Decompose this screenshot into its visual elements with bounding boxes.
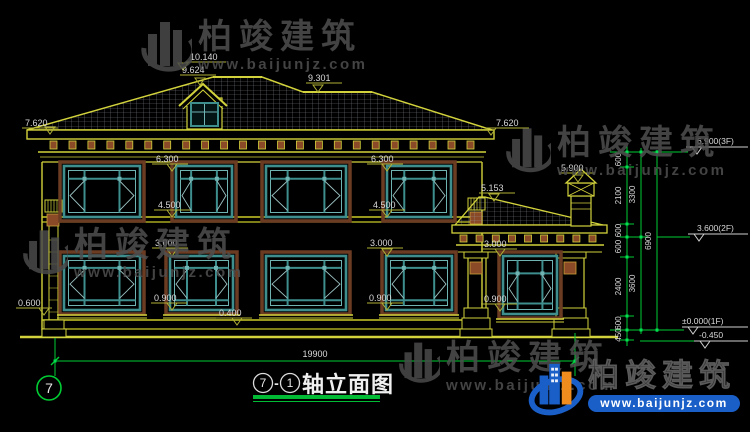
window bbox=[259, 252, 353, 318]
window bbox=[172, 162, 236, 221]
dim-base-left: 0.600 bbox=[18, 298, 41, 308]
dim-ridge-secondary: 9.301 bbox=[308, 73, 331, 83]
chain-dim-value: 450 bbox=[614, 328, 623, 342]
chain-dim-value: 600 bbox=[614, 239, 623, 253]
dim-porch-eave: 5.153 bbox=[481, 183, 504, 193]
window bbox=[383, 162, 455, 221]
window bbox=[262, 162, 350, 221]
brand-logo: 柏竣建筑 www.baijunjz.com bbox=[528, 360, 740, 418]
dim-2f-sill-left: 4.500 bbox=[158, 200, 181, 210]
brand-logo-text: 柏竣建筑 bbox=[588, 360, 740, 393]
window bbox=[379, 252, 459, 318]
dim-2f-sill-right: 4.500 bbox=[373, 200, 396, 210]
dentil-row-porch bbox=[460, 235, 596, 242]
main-eave bbox=[27, 130, 494, 162]
flag-ground: -0.450 bbox=[699, 330, 723, 340]
dim-eave-right: 7.620 bbox=[496, 118, 519, 128]
flag-2f: 3.600(2F) bbox=[697, 223, 734, 233]
cad-elevation-screenshot: 10.140 9.624 9.301 7.620 7.620 5.900 5.1… bbox=[0, 0, 750, 432]
dim-1f-sill-left: 0.900 bbox=[154, 293, 177, 303]
dim-1f-sill-porch: 0.900 bbox=[484, 294, 507, 304]
dim-overall-width: 19900 bbox=[302, 349, 327, 359]
chain-dim-value: 6900 bbox=[644, 232, 653, 250]
title-axis-end: 1 bbox=[287, 376, 294, 390]
chain-dim-value: 3600 bbox=[628, 274, 637, 292]
window bbox=[496, 252, 564, 322]
title-text: 轴立面图 bbox=[302, 372, 394, 397]
window bbox=[60, 162, 144, 221]
drawing-title: 7 - 1 轴立面图 bbox=[253, 372, 394, 402]
chain-dim-value: 3300 bbox=[628, 185, 637, 203]
brand-logo-url: www.baijunjz.com bbox=[588, 395, 740, 412]
chain-dim-value: 600 bbox=[614, 152, 623, 166]
chain-dim-value: 2400 bbox=[614, 277, 623, 295]
chain-dim-value: 2100 bbox=[614, 186, 623, 204]
dim-1f-head-mid: 3.000 bbox=[370, 238, 393, 248]
dim-1f-sill-mid: 0.900 bbox=[369, 293, 392, 303]
brand-logo-icon bbox=[528, 360, 584, 418]
dim-1f-head-porch: 3.000 bbox=[484, 239, 507, 249]
dim-2f-head-right: 6.300 bbox=[371, 154, 394, 164]
dim-eave-left: 7.620 bbox=[25, 118, 48, 128]
dim-ridge-main: 10.140 bbox=[190, 52, 218, 62]
dim-chimney-top: 5.900 bbox=[561, 163, 584, 173]
title-separator: - bbox=[274, 375, 279, 391]
main-roof bbox=[27, 77, 492, 130]
flag-1f: ±0.000(1F) bbox=[682, 316, 724, 326]
dim-dormer-ridge: 9.624 bbox=[182, 65, 205, 75]
window bbox=[57, 252, 147, 318]
chain-value-texts: 60021006006002400600450330036006900 bbox=[614, 152, 653, 341]
dim-1f-head-left: 3.000 bbox=[155, 238, 178, 248]
dentil-row-main bbox=[50, 141, 474, 149]
axis-bubble-label: 7 bbox=[45, 380, 53, 396]
flag-3f: 6.900(3F) bbox=[697, 136, 734, 146]
axis-bubble-7: 7 bbox=[37, 376, 61, 400]
title-underline-thick bbox=[253, 395, 380, 399]
dim-plinth-top: 0.400 bbox=[219, 308, 242, 318]
dim-2f-head-left: 6.300 bbox=[156, 154, 179, 164]
level-flag-texts: 6.900(3F) 3.600(2F) ±0.000(1F) -0.450 bbox=[682, 136, 734, 340]
chain-dim-value: 600 bbox=[614, 316, 623, 330]
title-axis-start: 7 bbox=[260, 376, 267, 390]
chain-dim-value: 600 bbox=[614, 223, 623, 237]
